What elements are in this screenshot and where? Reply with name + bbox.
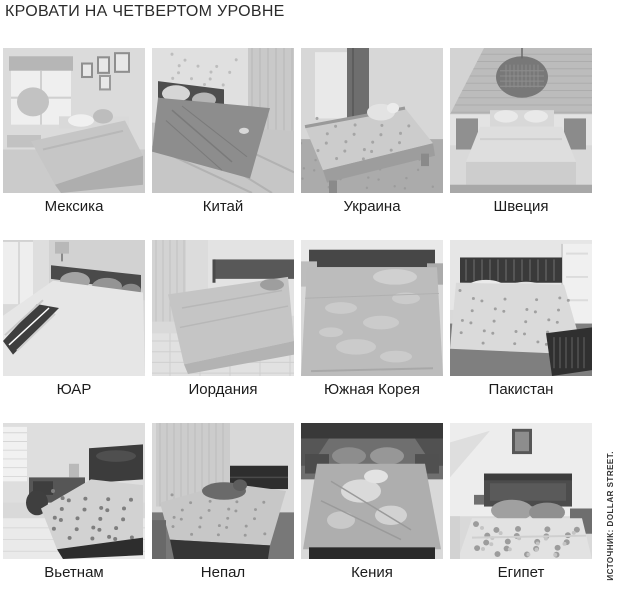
grid-cell-yuar: ЮАР (3, 240, 145, 423)
grid-cell-kenya: Кения (301, 423, 443, 606)
grid-cell-jordan: Иордания (152, 240, 294, 423)
photo-caption-jordan: Иордания (152, 382, 294, 398)
photo-caption-sweden: Швеция (450, 199, 592, 215)
bedroom-photo-jordan (152, 240, 294, 376)
bedroom-photo-egypt (450, 423, 592, 559)
grid-cell-egypt: Египет (450, 423, 592, 606)
bedroom-photo-mexico (3, 48, 145, 193)
bedroom-photo-china (152, 48, 294, 193)
photo-caption-pakistan: Пакистан (450, 382, 592, 398)
photo-caption-ukraine: Украина (301, 199, 443, 215)
photo-caption-vietnam: Вьетнам (3, 565, 145, 581)
bedroom-photo-grid: МексикаКитайУкраинаШвецияЮАРИорданияЮжна… (3, 48, 592, 606)
bedroom-photo-pakistan (450, 240, 592, 376)
photo-caption-egypt: Египет (450, 565, 592, 581)
bedroom-photo-korea (301, 240, 443, 376)
page: КРОВАТИ НА ЧЕТВЕРТОМ УРОВНЕ МексикаКитай… (0, 0, 617, 591)
grid-cell-vietnam: Вьетнам (3, 423, 145, 606)
bedroom-photo-kenya (301, 423, 443, 559)
photo-caption-mexico: Мексика (3, 199, 145, 215)
photo-caption-china: Китай (152, 199, 294, 215)
photo-caption-korea: Южная Корея (301, 382, 443, 398)
bedroom-photo-vietnam (3, 423, 145, 559)
grid-cell-nepal: Непал (152, 423, 294, 606)
bedroom-photo-sweden (450, 48, 592, 193)
grid-cell-mexico: Мексика (3, 48, 145, 240)
photo-caption-yuar: ЮАР (3, 382, 145, 398)
bedroom-photo-nepal (152, 423, 294, 559)
grid-cell-korea: Южная Корея (301, 240, 443, 423)
source-note: ИСТОЧНИК: DOLLAR STREET. (606, 451, 615, 581)
bedroom-photo-yuar (3, 240, 145, 376)
grid-cell-sweden: Швеция (450, 48, 592, 240)
grid-cell-china: Китай (152, 48, 294, 240)
photo-caption-kenya: Кения (301, 565, 443, 581)
grid-cell-ukraine: Украина (301, 48, 443, 240)
photo-caption-nepal: Непал (152, 565, 294, 581)
bedroom-photo-ukraine (301, 48, 443, 193)
grid-cell-pakistan: Пакистан (450, 240, 592, 423)
page-title: КРОВАТИ НА ЧЕТВЕРТОМ УРОВНЕ (5, 3, 285, 21)
